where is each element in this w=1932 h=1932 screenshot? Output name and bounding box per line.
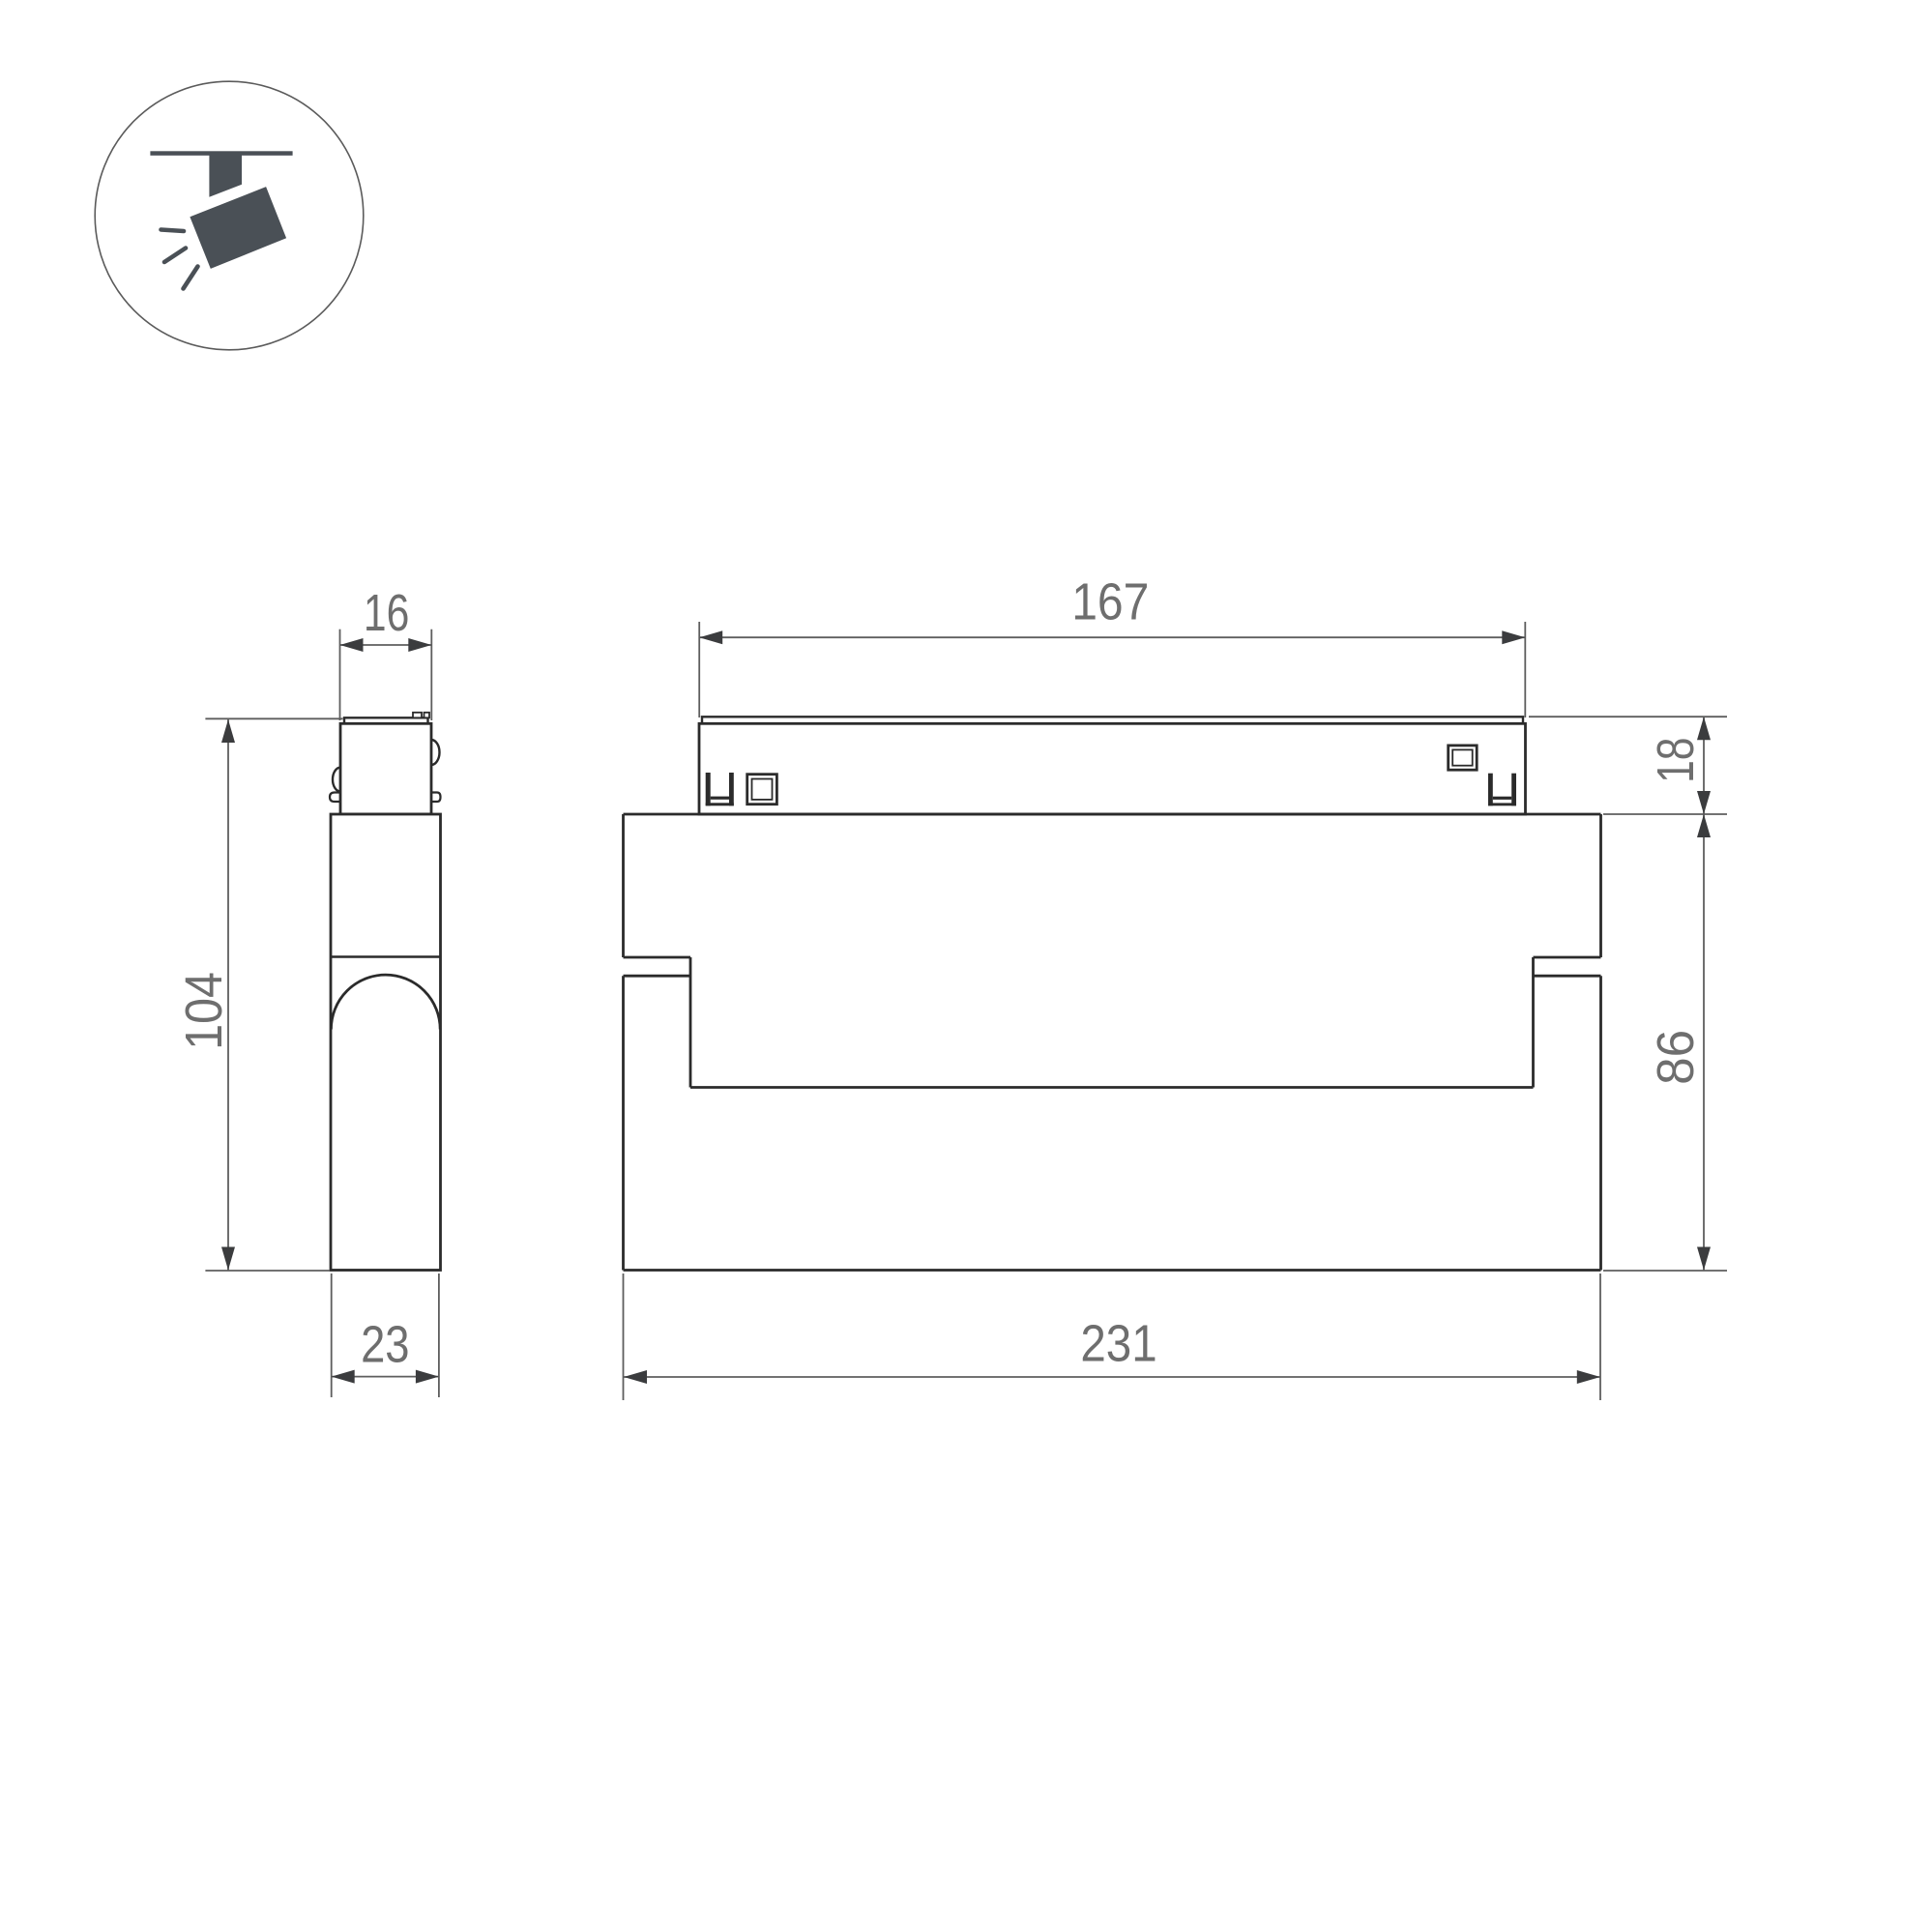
svg-text:104: 104	[174, 972, 232, 1050]
svg-text:18: 18	[1647, 737, 1705, 782]
svg-text:167: 167	[1071, 572, 1149, 630]
svg-text:16: 16	[364, 584, 409, 642]
svg-text:231: 231	[1080, 1314, 1156, 1373]
svg-text:23: 23	[361, 1315, 409, 1374]
svg-text:86: 86	[1647, 1030, 1705, 1085]
